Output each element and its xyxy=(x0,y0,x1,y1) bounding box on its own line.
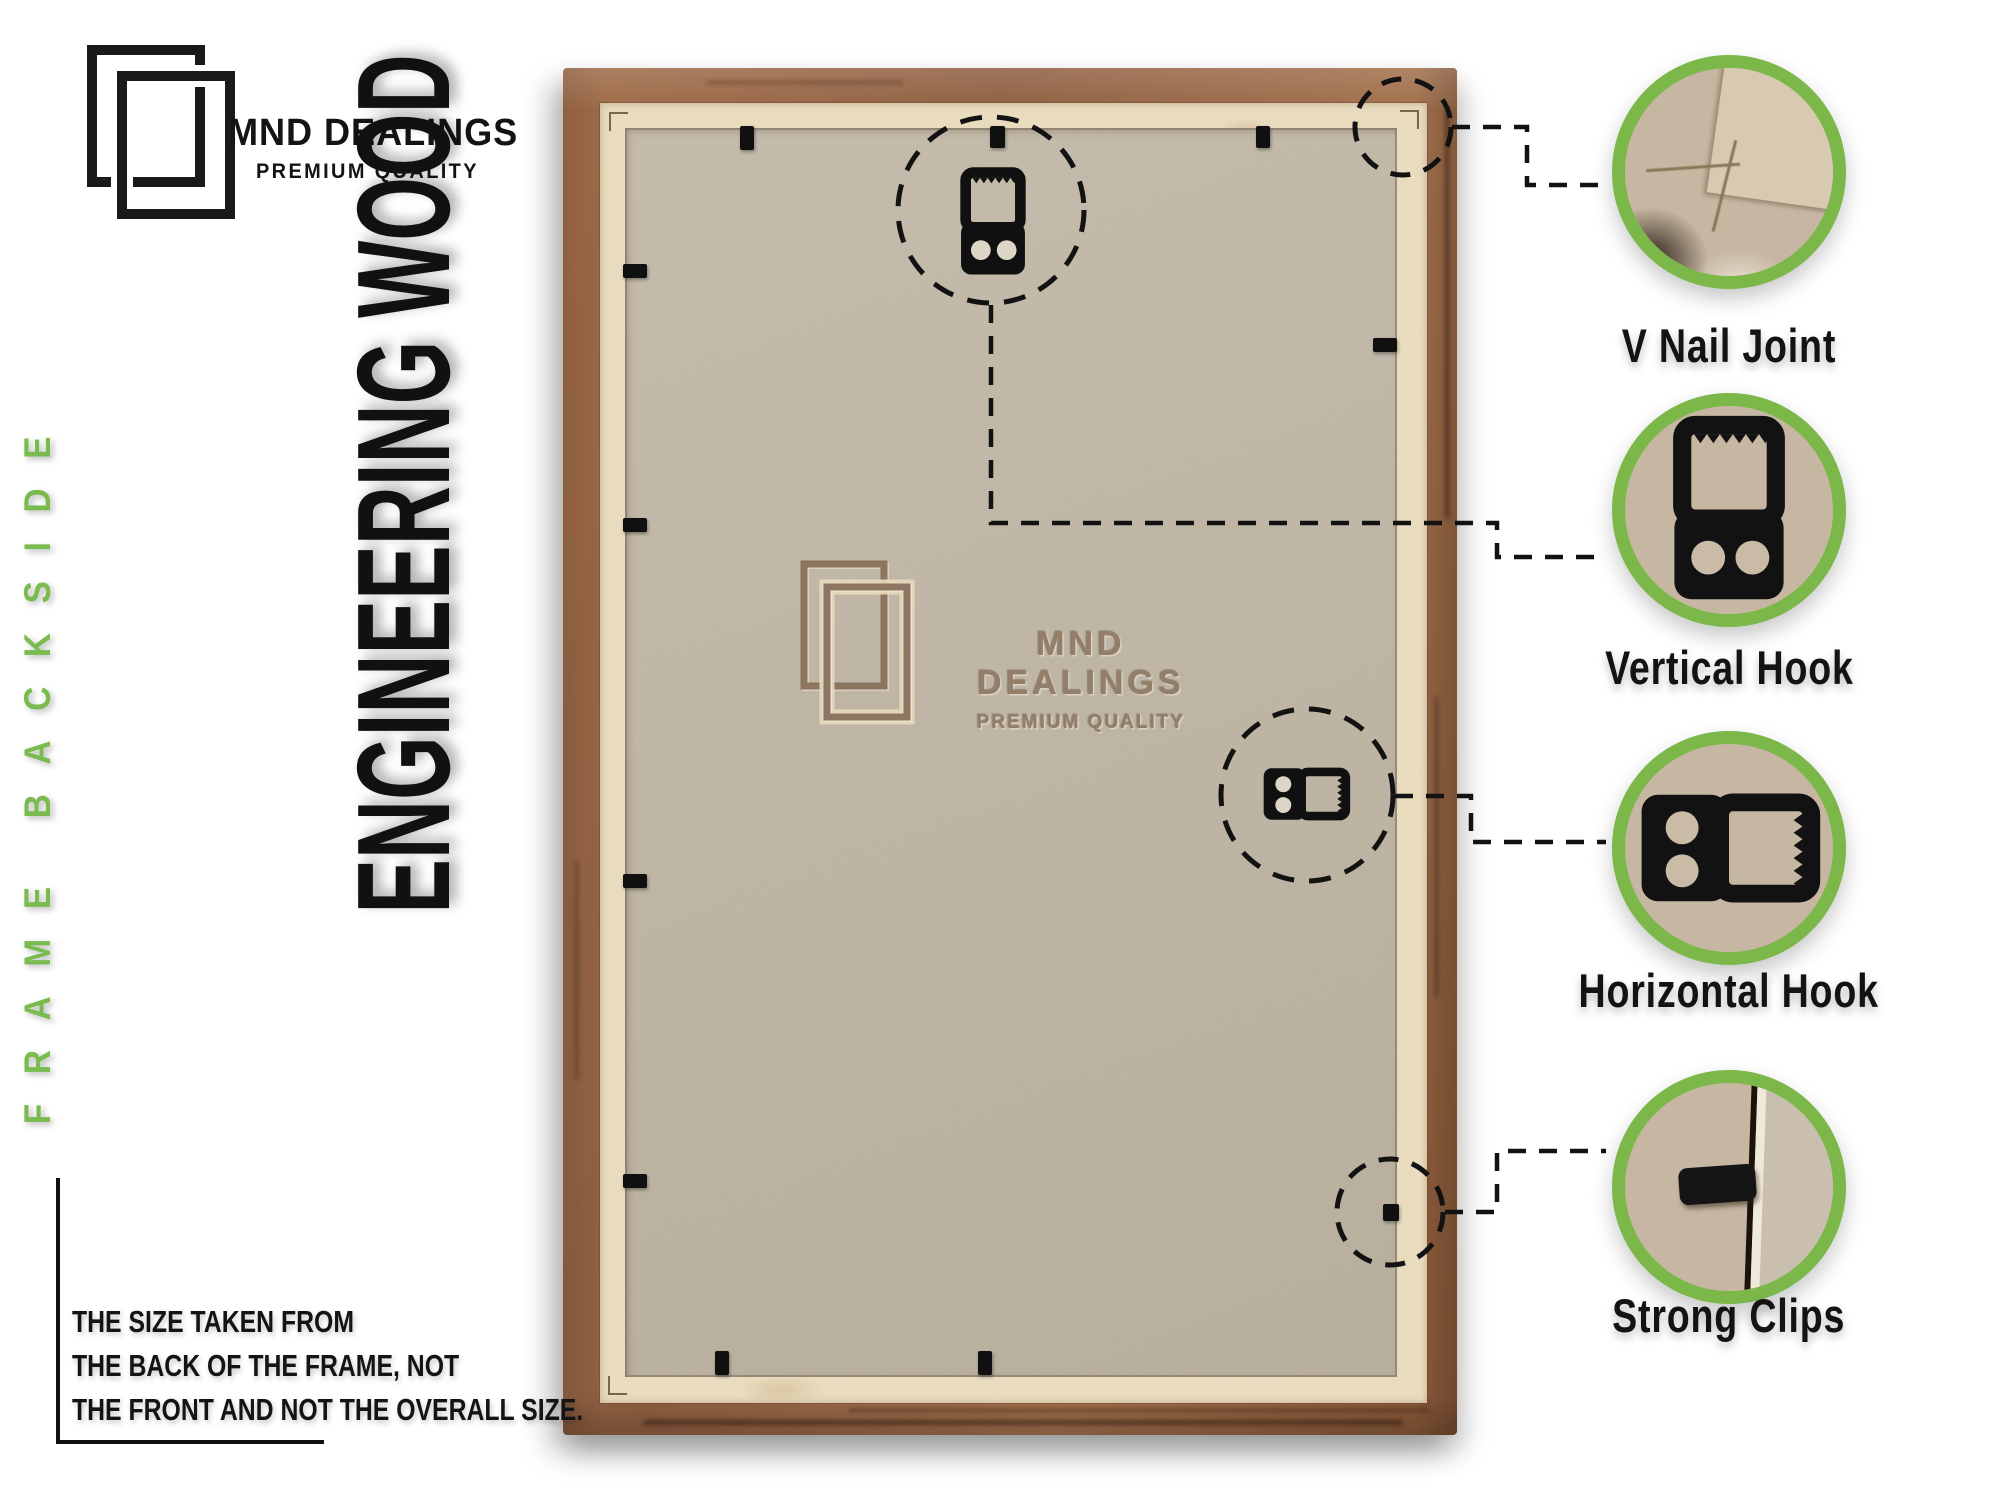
engineering-wood-label-text: ENGINEERING WOOD xyxy=(328,54,479,913)
callout-label-text: V Nail Joint xyxy=(1622,318,1836,373)
backing-clip xyxy=(1256,126,1270,148)
strong-clip-icon xyxy=(1678,1164,1757,1207)
frame-backside-label: FRAME BACKSIDE xyxy=(17,365,77,1165)
backing-clip xyxy=(978,1351,992,1375)
backing-clip-circled xyxy=(1383,1204,1399,1221)
watermark-text: MND DEALINGS PREMIUM QUALITY xyxy=(931,625,1231,734)
size-note-line: THE BACK OF THE FRAME, NOT xyxy=(72,1344,459,1388)
v-nail-joint-shadow xyxy=(1625,68,1833,276)
frame-backside-label-text: FRAME BACKSIDE xyxy=(17,406,59,1123)
backing-clip xyxy=(1373,338,1397,352)
callout-label-horizontal-hook: Horizontal Hook xyxy=(1489,963,1969,1018)
callout-label-text: Strong Clips xyxy=(1612,1288,1845,1343)
backing-clip xyxy=(990,126,1005,148)
backing-clip xyxy=(740,126,754,150)
vertical-hook-icon xyxy=(1664,412,1794,607)
frame-photo: MND DEALINGS PREMIUM QUALITY xyxy=(563,68,1457,1435)
wood-grain-streak xyxy=(575,861,578,1080)
backing-clip xyxy=(715,1351,729,1375)
size-note-line: THE SIZE TAKEN FROM xyxy=(72,1300,354,1344)
backing-clip xyxy=(623,264,647,278)
mdf-edge xyxy=(1754,1083,1833,1291)
callout-label-strong-clips: Strong Clips xyxy=(1489,1288,1969,1343)
corner-mark xyxy=(609,112,628,131)
callout-label-text: Vertical Hook xyxy=(1605,640,1854,695)
callout-v-nail-joint xyxy=(1612,55,1846,289)
backing-clip xyxy=(623,1174,647,1188)
callout-label-vertical-hook: Vertical Hook xyxy=(1489,640,1969,695)
corner-mark xyxy=(1400,110,1419,129)
callout-label-text: Horizontal Hook xyxy=(1579,963,1879,1018)
watermark: MND DEALINGS PREMIUM QUALITY xyxy=(795,555,1225,780)
wood-grain-streak xyxy=(643,1420,1403,1425)
callout-label-v-nail-joint: V Nail Joint xyxy=(1489,318,1969,373)
horizontal-hook-icon xyxy=(1634,753,1824,943)
backing-clip xyxy=(623,874,647,888)
leader-line-v-nail-joint xyxy=(1452,127,1606,185)
size-note-line: THE FRONT AND NOT THE OVERALL SIZE. xyxy=(72,1388,583,1432)
wood-grain-streak xyxy=(1435,697,1438,998)
horizontal-hook-icon xyxy=(1260,748,1352,840)
frame-backside-infographic: MND DEALINGS PREMIUM QUALITY FRAME BACKS… xyxy=(0,0,2000,1500)
wood-grain-streak xyxy=(849,1409,1430,1412)
watermark-name: MND DEALINGS xyxy=(931,625,1231,703)
wood-grain-streak xyxy=(706,81,903,84)
callout-strong-clips xyxy=(1612,1070,1846,1304)
brand-logo-icon xyxy=(82,40,252,220)
watermark-logo-icon xyxy=(795,555,930,765)
size-note: THE SIZE TAKEN FROM THE BACK OF THE FRAM… xyxy=(72,1300,711,1432)
engineering-wood-label: ENGINEERING WOOD xyxy=(328,0,468,1177)
leader-line-strong-clip xyxy=(1445,1151,1606,1212)
backing-clip xyxy=(623,518,647,532)
callout-vertical-hook xyxy=(1612,393,1846,627)
watermark-tagline: PREMIUM QUALITY xyxy=(931,712,1231,734)
callout-horizontal-hook xyxy=(1612,731,1846,965)
wood-grain-streak xyxy=(1445,109,1449,519)
vertical-hook-icon xyxy=(955,165,1031,279)
